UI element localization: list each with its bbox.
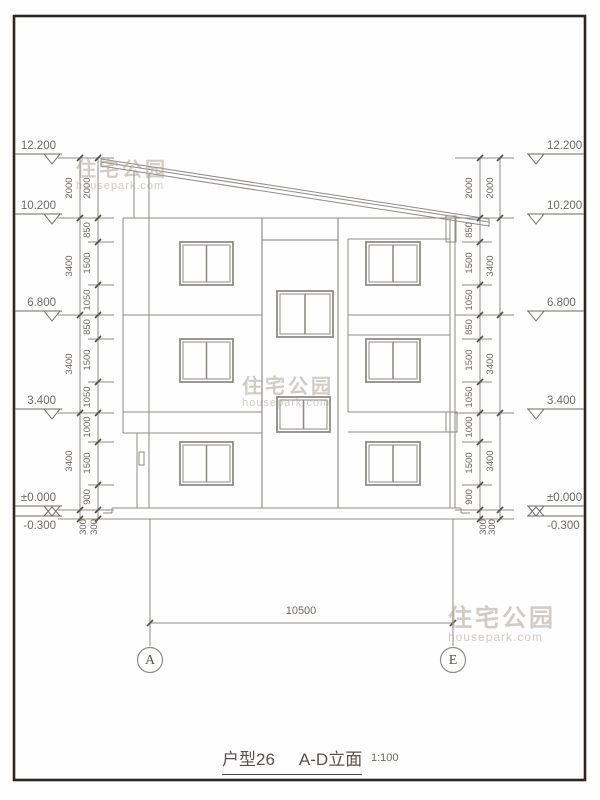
elevation-label-right-10200: 10.200 bbox=[547, 200, 582, 213]
dim-detail-left-1500b: 1500 bbox=[83, 349, 93, 370]
right-wall bbox=[446, 216, 457, 508]
dim-detail-right-850b: 850 bbox=[465, 319, 475, 335]
dim-detail-left-1050a: 1050 bbox=[83, 289, 93, 310]
drawing-title-project: 户型26 bbox=[222, 750, 275, 769]
watermark-cn: 住宅公园 bbox=[448, 606, 556, 631]
floor-lines bbox=[123, 315, 457, 433]
watermark-center: 住宅公园 housepark.com bbox=[242, 377, 334, 410]
dim-detail-right-1500a: 1500 bbox=[465, 252, 475, 273]
watermark-en: housepark.com bbox=[242, 398, 334, 410]
dim-floor-right-2000: 2000 bbox=[486, 177, 496, 198]
stair-tower bbox=[262, 218, 338, 508]
dim-detail-right-1050b: 1050 bbox=[465, 386, 475, 407]
dim-detail-right-2000: 2000 bbox=[465, 177, 475, 198]
elevation-label-right-0000: ±0.000 bbox=[547, 492, 582, 505]
window-f1-left bbox=[180, 442, 233, 485]
drawing-sheet: 12.200 10.200 6.800 3.400 ±0.000 -0.300 … bbox=[0, 0, 600, 800]
wall-pipe-outlet bbox=[139, 452, 144, 465]
watermark-cn: 住宅公园 bbox=[242, 377, 334, 398]
dim-detail-right-1500b: 1500 bbox=[465, 349, 475, 370]
dim-floor-right-3400a: 3400 bbox=[486, 255, 496, 276]
dim-floor-left-2000: 2000 bbox=[65, 177, 75, 198]
dim-detail-right-1050a: 1050 bbox=[465, 289, 475, 310]
dim-floor-right-300: 300 bbox=[488, 519, 498, 535]
dim-floor-left-300: 300 bbox=[79, 519, 89, 535]
dim-detail-right-1500c: 1500 bbox=[465, 452, 475, 473]
windows bbox=[180, 242, 420, 485]
watermark-en: housepark.com bbox=[76, 181, 168, 193]
elevation-label-left-0000: ±0.000 bbox=[12, 492, 56, 505]
drawing-title: 户型26A-D立面 bbox=[222, 745, 362, 775]
elevation-label-right-6800: 6.800 bbox=[547, 297, 576, 310]
dim-detail-left-850a: 850 bbox=[83, 222, 93, 238]
window-stair-upper bbox=[277, 291, 333, 337]
dim-floor-right-3400c: 3400 bbox=[486, 450, 496, 471]
elevation-label-left-6800: 6.800 bbox=[12, 297, 56, 310]
elevation-label-right-3400: 3.400 bbox=[547, 395, 576, 408]
dim-detail-right-900: 900 bbox=[465, 489, 475, 505]
dim-detail-left-900: 900 bbox=[83, 489, 93, 505]
elevation-label-left-12200: 12.200 bbox=[12, 140, 56, 153]
window-f3-right bbox=[366, 242, 420, 285]
elevation-label-left-3400: 3.400 bbox=[12, 395, 56, 408]
left-wall bbox=[123, 218, 137, 508]
drawing-title-view: A-D立面 bbox=[299, 750, 362, 769]
watermark-en: housepark.com bbox=[448, 631, 556, 644]
window-f2-left bbox=[180, 339, 233, 382]
watermark-top-left: 住宅公园 housepark.com bbox=[76, 160, 168, 193]
dim-floor-left-3400a: 3400 bbox=[65, 255, 75, 276]
drawing-scale: 1:100 bbox=[371, 752, 399, 764]
elevation-markers bbox=[15, 154, 584, 516]
watermark-bottom-right: 住宅公园 housepark.com bbox=[448, 606, 556, 644]
elevation-label-right-12200: 12.200 bbox=[547, 140, 582, 153]
dim-detail-left-1050b: 1050 bbox=[83, 386, 93, 407]
dim-floor-right-3400b: 3400 bbox=[486, 353, 496, 374]
grid-bubble-e-label: E bbox=[449, 653, 458, 669]
dim-detail-left-1000: 1000 bbox=[83, 416, 93, 437]
elevation-label-right-n0300: -0.300 bbox=[547, 520, 580, 533]
dim-floor-left-3400b: 3400 bbox=[65, 353, 75, 374]
right-section-recess bbox=[348, 239, 450, 412]
window-f1-right bbox=[366, 442, 420, 485]
dim-detail-right-1000: 1000 bbox=[465, 416, 475, 437]
grid-bubble-a-label: A bbox=[145, 653, 155, 669]
elevation-label-left-n0300: -0.300 bbox=[12, 520, 56, 533]
dim-detail-right-850a: 850 bbox=[465, 222, 475, 238]
window-f2-right bbox=[366, 339, 420, 382]
building-elevation bbox=[101, 159, 489, 519]
dim-overall-width: 10500 bbox=[286, 606, 317, 616]
dim-detail-left-1500a: 1500 bbox=[83, 252, 93, 273]
dim-detail-left-850b: 850 bbox=[83, 319, 93, 335]
ground-lines bbox=[103, 508, 478, 519]
elevation-label-left-10200: 10.200 bbox=[12, 200, 56, 213]
dim-detail-left-1500c: 1500 bbox=[83, 452, 93, 473]
window-f3-left bbox=[180, 242, 233, 285]
dim-floor-left-3400c: 3400 bbox=[65, 450, 75, 471]
dim-detail-right-300: 300 bbox=[479, 519, 489, 535]
watermark-cn: 住宅公园 bbox=[76, 160, 168, 181]
dim-detail-left-300: 300 bbox=[90, 519, 100, 535]
